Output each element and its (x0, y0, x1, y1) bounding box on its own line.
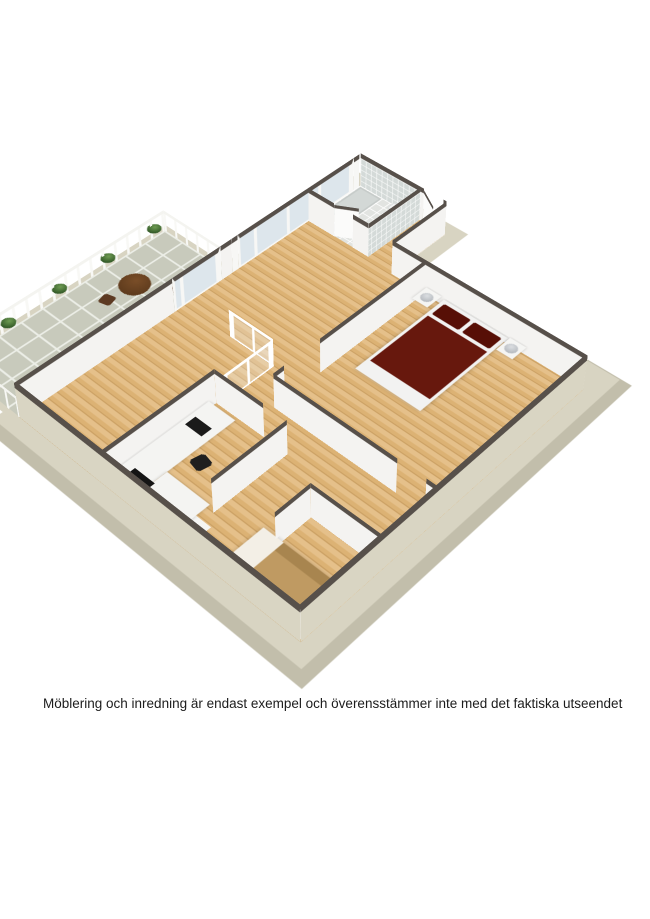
table-lamp (502, 342, 521, 356)
table-lamp (418, 291, 437, 304)
apartment-floorplan (20, 186, 635, 642)
disclaimer-text: Möblering och inredning är endast exempe… (43, 695, 623, 712)
wall-post (354, 154, 360, 191)
floorplan-3d-scene (0, 0, 650, 690)
